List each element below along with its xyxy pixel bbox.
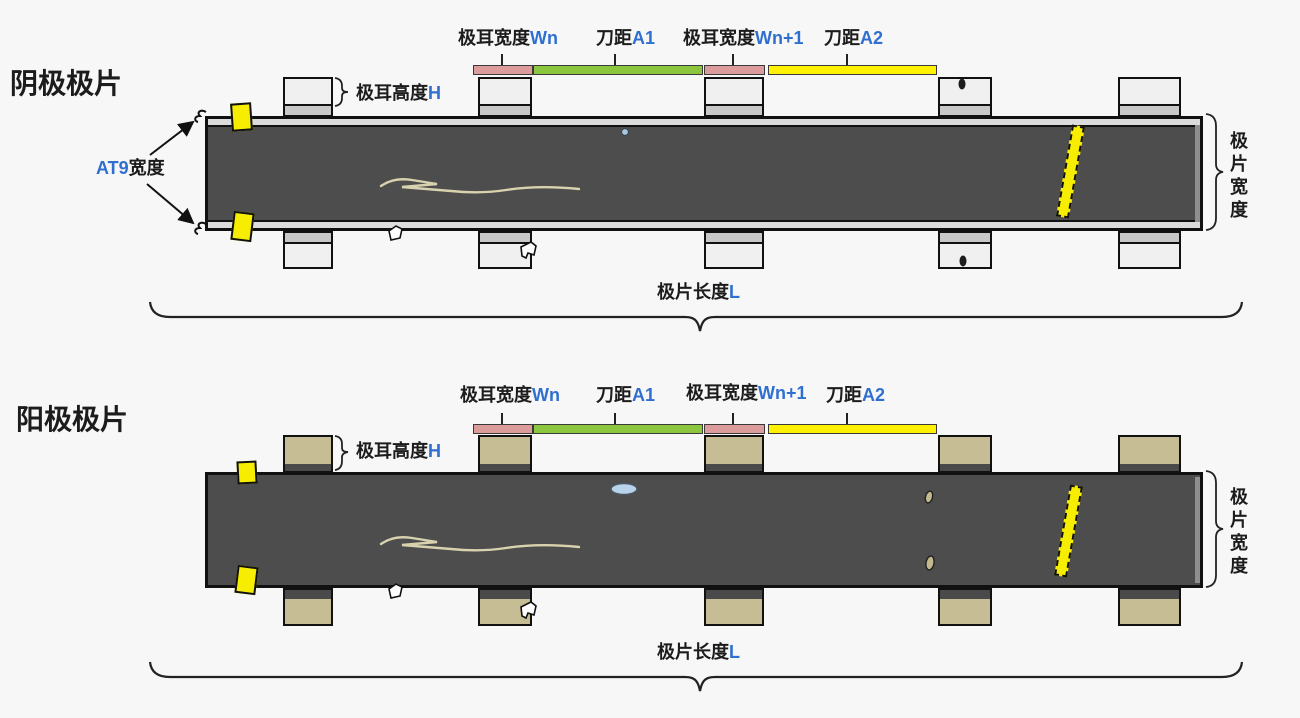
tab-height-label-var: H bbox=[428, 441, 441, 461]
tab-weld-band bbox=[285, 590, 331, 599]
anode-tab-bottom-4 bbox=[938, 588, 992, 626]
knife-a1-label: 刀距A1 bbox=[596, 385, 655, 405]
anode-tab-top-1 bbox=[283, 435, 333, 473]
anode-tab-top-2 bbox=[478, 435, 532, 473]
knife-a1-label-zh: 刀距 bbox=[596, 385, 632, 405]
anode-title: 阳极极片 bbox=[16, 398, 128, 438]
tab-weld-band bbox=[706, 464, 762, 471]
anode-strip bbox=[205, 472, 1203, 588]
strip-length-label: 极片长度L bbox=[657, 642, 740, 662]
tab-weld-band bbox=[940, 590, 990, 599]
alignment-mark-yellow bbox=[234, 565, 258, 595]
anode-tab-top-5 bbox=[1118, 435, 1181, 473]
tab-width-wn1-bar bbox=[704, 424, 765, 434]
tab-width-wn-label-zh: 极耳宽度 bbox=[460, 385, 532, 405]
knife-a2-label: 刀距A2 bbox=[826, 385, 885, 405]
knife-a2-label-var: A2 bbox=[862, 385, 885, 405]
knife-a1-label-var: A1 bbox=[632, 385, 655, 405]
tab-width-wn-label-var: Wn bbox=[532, 385, 560, 405]
tab-width-wn-label: 极耳宽度Wn bbox=[460, 385, 560, 405]
alignment-mark-yellow bbox=[236, 460, 257, 484]
tab-weld-band bbox=[940, 464, 990, 471]
tab-weld-band bbox=[480, 590, 530, 599]
tab-weld-band bbox=[285, 464, 331, 471]
anode-diagram: 阳极极片 极耳宽度Wn 刀距A1 极耳宽度Wn+1 刀距A2 bbox=[0, 0, 1300, 718]
tab-weld-band bbox=[1120, 590, 1179, 599]
anode-tab-top-4 bbox=[938, 435, 992, 473]
tab-height-label: 极耳高度H bbox=[356, 441, 441, 461]
strip-length-label-zh: 极片长度 bbox=[657, 642, 729, 662]
tab-width-wn-bar bbox=[473, 424, 533, 434]
tab-width-wn1-label-zh: 极耳宽度 bbox=[686, 383, 758, 403]
strip-right-shade bbox=[1195, 477, 1200, 583]
anode-tab-bottom-1 bbox=[283, 588, 333, 626]
knife-a2-label-zh: 刀距 bbox=[826, 385, 862, 405]
tab-width-wn1-label-var: Wn+1 bbox=[758, 383, 807, 403]
electrode-sheet-diagram: 阴极极片 极耳宽度Wn 刀距A1 极耳宽度Wn+1 刀距A2 bbox=[0, 0, 1300, 718]
anode-tab-bottom-2 bbox=[478, 588, 532, 626]
strip-length-label-var: L bbox=[729, 642, 740, 662]
anode-tab-top-3 bbox=[704, 435, 764, 473]
knife-a1-bar bbox=[533, 424, 703, 434]
knife-a2-bar bbox=[768, 424, 937, 434]
tab-weld-band bbox=[706, 590, 762, 599]
tab-weld-band bbox=[1120, 464, 1179, 471]
tab-height-label-zh: 极耳高度 bbox=[356, 441, 428, 461]
anode-tab-bottom-3 bbox=[704, 588, 764, 626]
strip-width-label: 极片宽度 bbox=[1226, 487, 1250, 587]
tab-weld-band bbox=[480, 464, 530, 471]
anode-tab-bottom-5 bbox=[1118, 588, 1181, 626]
tab-width-wn1-label: 极耳宽度Wn+1 bbox=[686, 383, 807, 403]
